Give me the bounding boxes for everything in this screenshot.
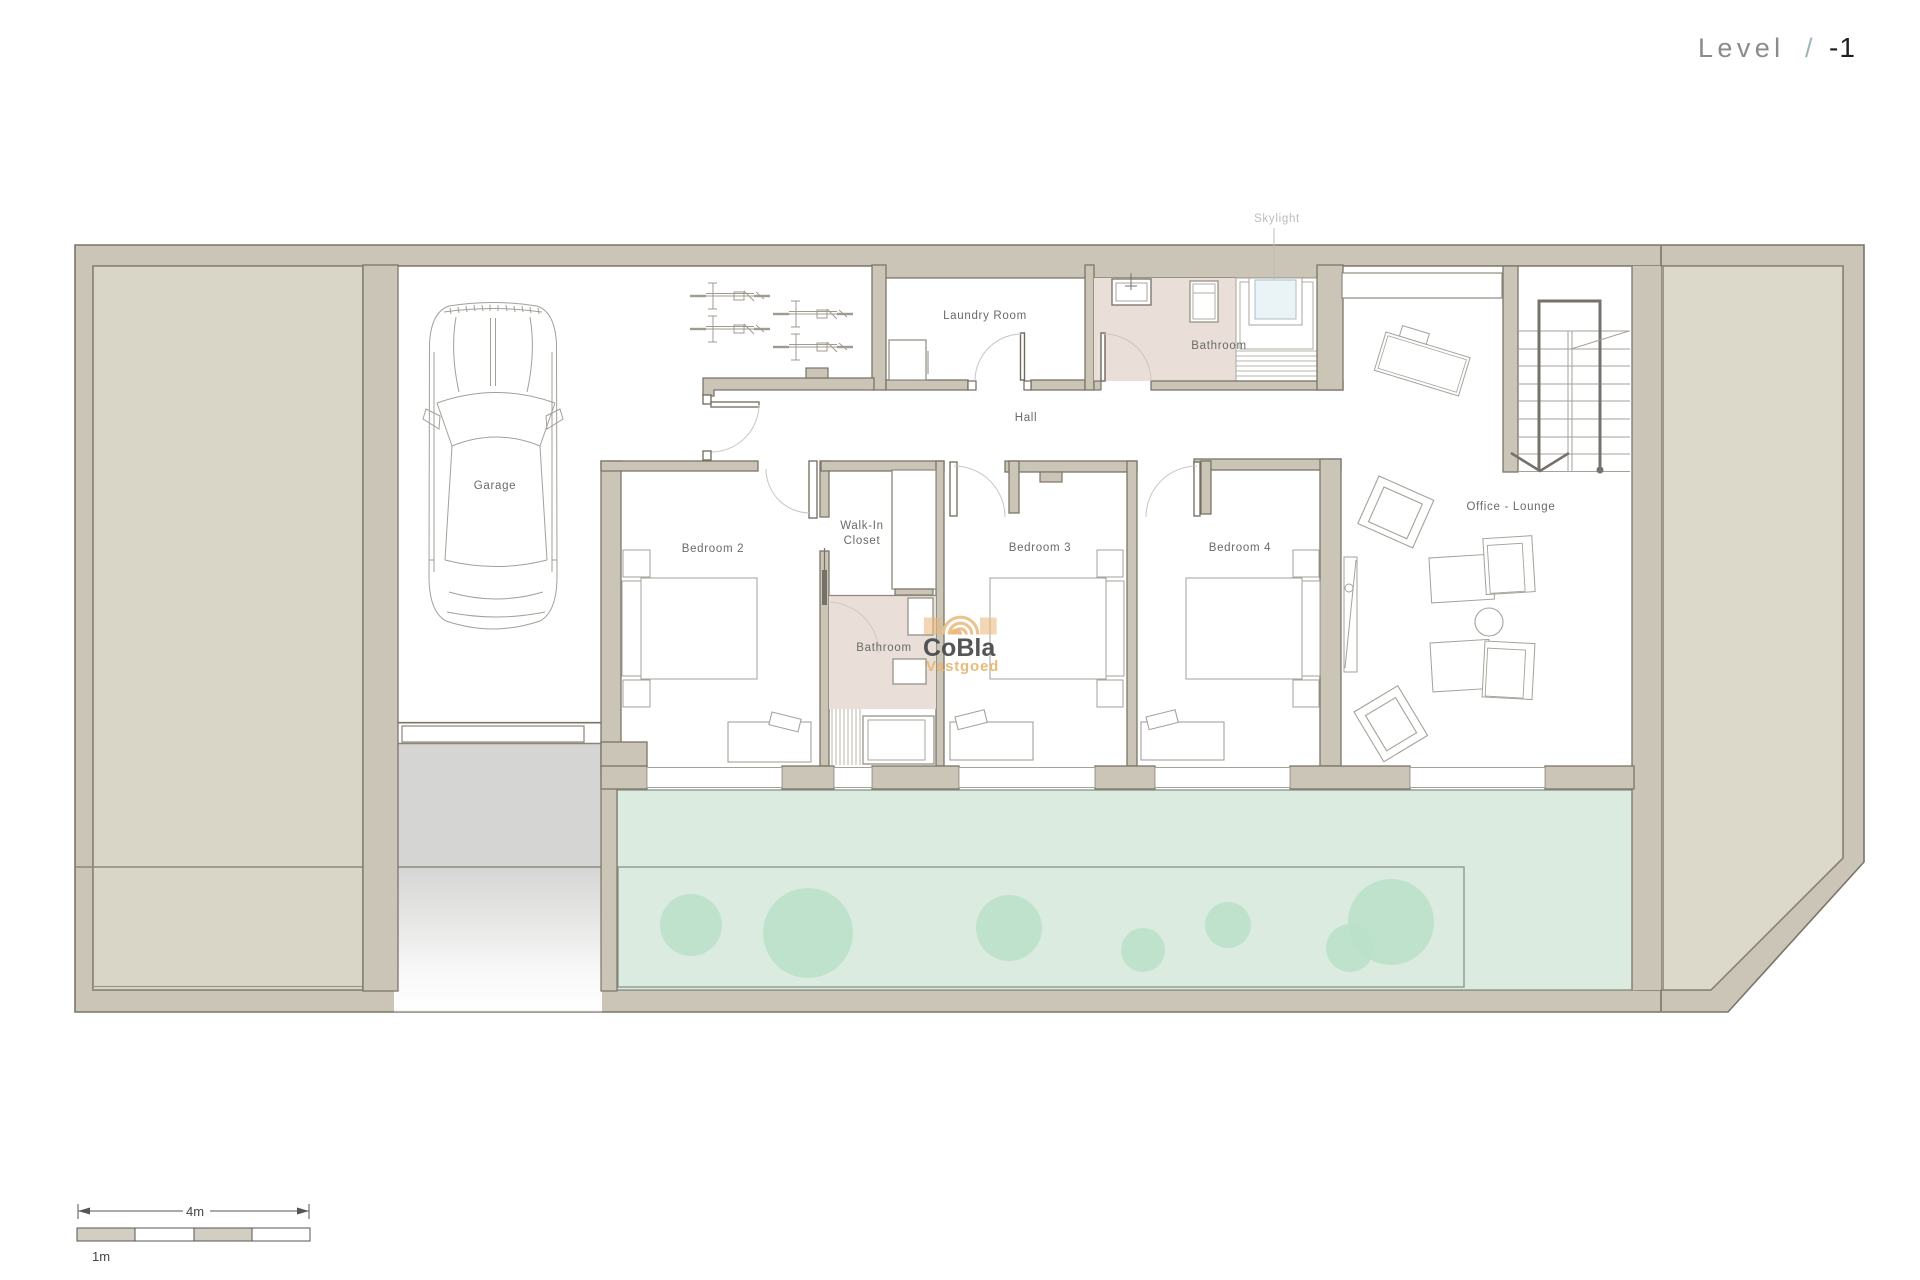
svg-text:Bedroom 4: Bedroom 4: [1209, 542, 1272, 554]
svg-text:Laundry Room: Laundry Room: [943, 310, 1027, 322]
svg-text:Garage: Garage: [474, 480, 517, 492]
svg-text:Bedroom 2: Bedroom 2: [682, 543, 745, 555]
svg-text:Hall: Hall: [1015, 412, 1038, 424]
svg-text:4m: 4m: [186, 1204, 204, 1219]
svg-text:Walk-In: Walk-In: [840, 520, 883, 532]
svg-text:Bathroom: Bathroom: [856, 642, 911, 654]
svg-text:Office - Lounge: Office - Lounge: [1467, 501, 1556, 513]
svg-text:Skylight: Skylight: [1254, 213, 1300, 225]
svg-text:Vastgoed: Vastgoed: [926, 658, 999, 675]
svg-text:-1: -1: [1829, 32, 1856, 63]
svg-text:Bedroom 3: Bedroom 3: [1009, 542, 1072, 554]
svg-text:Closet: Closet: [844, 535, 881, 547]
svg-text:Level: Level: [1698, 33, 1785, 63]
svg-text:1m: 1m: [92, 1249, 110, 1264]
svg-text:Bathroom: Bathroom: [1191, 340, 1246, 352]
svg-text:/: /: [1805, 33, 1813, 63]
